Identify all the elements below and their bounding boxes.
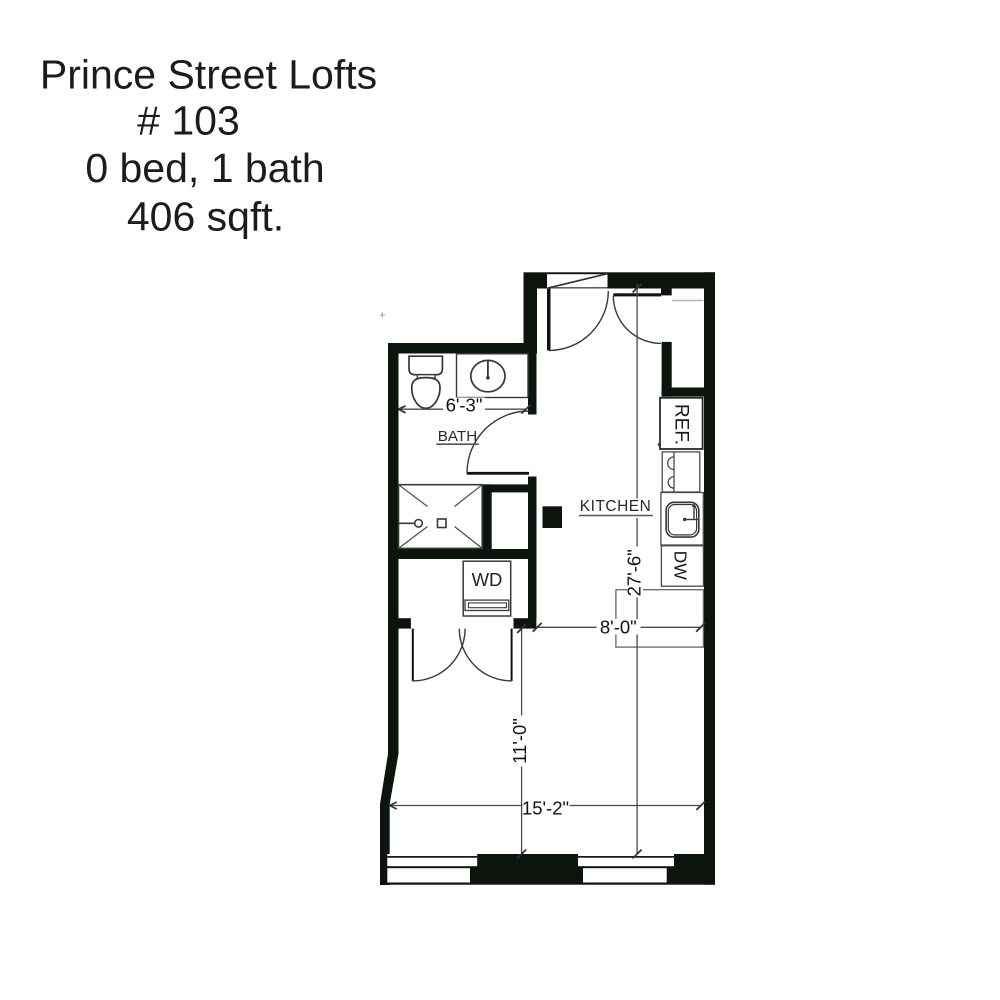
- svg-text:27'-6": 27'-6": [624, 549, 645, 596]
- svg-text:BATH: BATH: [438, 428, 477, 445]
- svg-text:11'-0": 11'-0": [509, 718, 530, 764]
- svg-text:# 103: # 103: [137, 98, 240, 144]
- svg-text:406 sqft.: 406 sqft.: [127, 194, 284, 240]
- svg-text:Prince Street Lofts: Prince Street Lofts: [40, 52, 377, 98]
- svg-text:WD: WD: [472, 569, 503, 590]
- svg-text:REF.: REF.: [671, 404, 692, 445]
- svg-text:DW: DW: [671, 551, 691, 581]
- svg-text:15'-2": 15'-2": [522, 798, 569, 819]
- svg-text:8'-0": 8'-0": [600, 616, 637, 637]
- svg-text:KITCHEN: KITCHEN: [580, 498, 652, 515]
- svg-text:0 bed, 1 bath: 0 bed, 1 bath: [85, 145, 324, 191]
- svg-text:6'-3": 6'-3": [446, 395, 483, 416]
